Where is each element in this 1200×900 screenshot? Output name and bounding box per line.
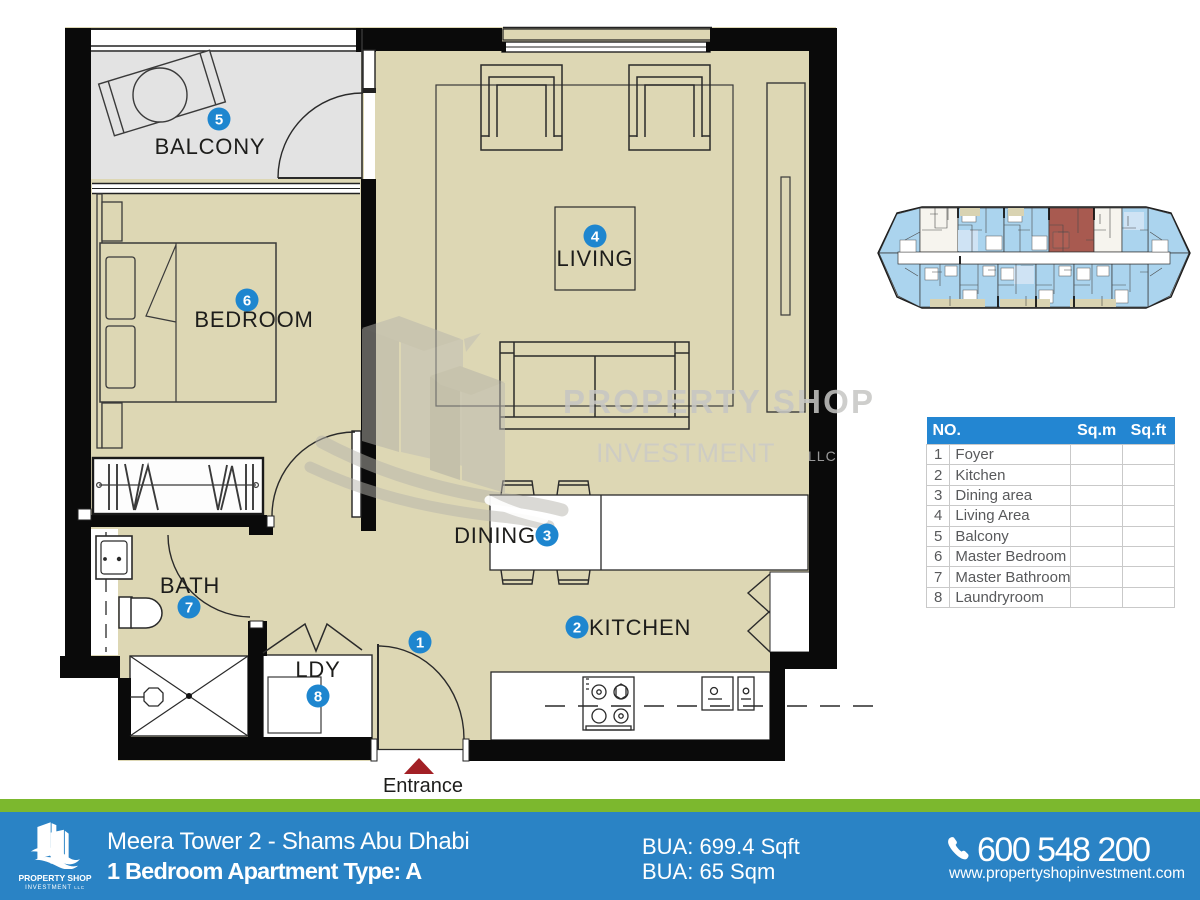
svg-text:LIVING: LIVING [557,246,634,271]
svg-text:INVESTMENT: INVESTMENT [596,438,775,468]
svg-text:BATH: BATH [160,573,220,598]
svg-text:Entrance: Entrance [383,775,463,797]
svg-text:7: 7 [185,600,193,617]
svg-text:LDY: LDY [295,657,340,682]
svg-text:8: 8 [314,689,322,706]
svg-text:LLC: LLC [808,448,837,464]
svg-text:1: 1 [416,635,424,652]
svg-text:4: 4 [591,229,600,246]
svg-text:5: 5 [215,112,223,129]
svg-text:PROPERTY SHOP: PROPERTY SHOP [563,383,875,420]
svg-text:3: 3 [543,528,551,545]
svg-text:BALCONY: BALCONY [155,134,266,159]
svg-text:DINING: DINING [454,523,536,548]
svg-text:2: 2 [573,620,581,637]
svg-text:BEDROOM: BEDROOM [194,307,313,332]
svg-text:KITCHEN: KITCHEN [589,615,691,640]
